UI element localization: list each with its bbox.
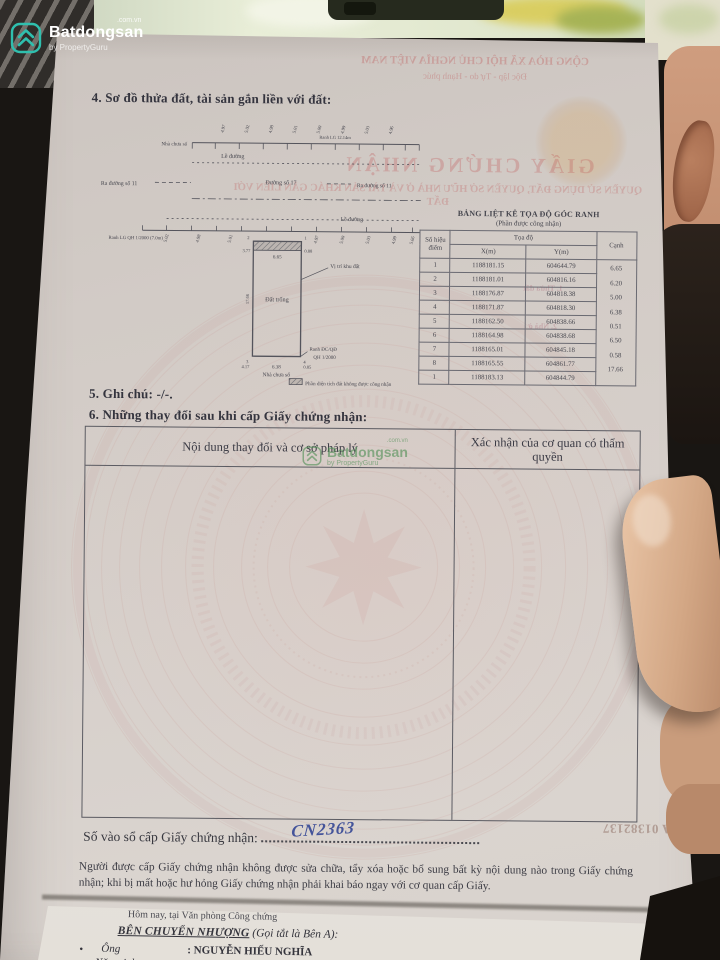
tick-label: 4.97 xyxy=(313,234,320,244)
coordinate-table: BẢNG LIỆT KÊ TỌA ĐỘ GÓC RANH (Phần được … xyxy=(417,209,639,387)
label-empty-land: Đất trống xyxy=(265,296,289,303)
window-green-blob xyxy=(659,4,719,34)
label-qh: QH 1/2000 xyxy=(313,356,336,361)
bleed-national-motto: CỘNG HÒA XÃ HỘI CHỦ NGHĨA VIỆT NAM xyxy=(320,54,630,69)
dim-top-left: 3.77 xyxy=(242,248,251,253)
window-green-foliage xyxy=(556,6,646,34)
dim-top-right: 0.88 xyxy=(304,249,313,254)
brand-watermark-top: .com.vn Batdongsan by PropertyGuru xyxy=(10,22,143,54)
label-house-top: Nhà chưa số xyxy=(161,140,187,147)
contract-party-heading: BÊN CHUYỂN NHƯỢNG (Gọi tắt là Bên A): xyxy=(118,925,339,941)
tick-label: 4.98 xyxy=(195,233,202,243)
col-header-x: X(m) xyxy=(450,244,526,259)
brand-domain: .com.vn xyxy=(387,438,408,444)
label-house-bottom: Nhà chưa số xyxy=(263,371,291,378)
registry-label: Số vào sổ cấp Giấy chứng nhận: xyxy=(83,829,258,846)
changes-col-confirm-header: Xác nhận của cơ quan có thẩm quyền xyxy=(455,430,639,470)
tick-label: 5.66 xyxy=(409,235,416,245)
tick-label: 5.01 xyxy=(227,233,234,243)
registry-number-handwritten: CN2363 xyxy=(291,818,356,842)
label-ranh-top: Ranh LG 12.14m xyxy=(319,135,351,140)
party-row-label: Ông xyxy=(101,943,120,955)
label-street-left: Ra đường số 11 xyxy=(101,180,138,187)
tick-label: 5.01 xyxy=(292,124,299,134)
tick-label: 4.99 xyxy=(340,124,347,134)
tick-label: 5.02 xyxy=(244,124,251,134)
dim-bottom-right: 0.85 xyxy=(303,365,312,370)
certificate-page: CỘNG HÒA XÃ HỘI CHỦ NGHĨA VIỆT NAM Độc l… xyxy=(0,0,720,960)
col-header-point: Số hiệu điểm xyxy=(420,230,450,258)
bullet-icon: • xyxy=(79,943,83,955)
hand-finger xyxy=(666,784,720,854)
changes-body-content-cell xyxy=(82,466,455,820)
photo-scene: CỘNG HÒA XÃ HỘI CHỦ NGHĨA VIỆT NAM Độc l… xyxy=(0,0,720,960)
col-header-coord: Tọa độ xyxy=(450,230,596,245)
label-ranh-qd: Ranh ĐC/QĐ xyxy=(309,348,337,353)
dashboard-object-tip xyxy=(344,2,376,15)
batdongsan-logo-icon xyxy=(302,446,322,466)
party-heading-suffix: (Gọi tắt là Bên A): xyxy=(252,927,338,940)
label-curb-bottom: Lề đường xyxy=(341,216,364,223)
legend-hatch-swatch xyxy=(289,378,302,384)
coordinate-table-subtitle: (Phần được công nhận) xyxy=(419,219,639,229)
dim-top: 6.65 xyxy=(273,255,282,260)
tick-label: 5.00 xyxy=(316,124,323,134)
section5-heading: 5. Ghi chú: -/-. xyxy=(89,386,173,403)
brand-watermark-center: .com.vn Batdongsan by PropertyGuru xyxy=(302,444,408,467)
edge-values: 6.656.20 5.006.38 0.516.50 0.5817.66 xyxy=(595,260,636,386)
tick-label: 4.99 xyxy=(391,235,398,245)
brand-byline: by PropertyGuru xyxy=(327,460,408,467)
cadastral-diagram: 4.97 5.02 4.98 5.01 5.00 4.99 5.03 4.96 … xyxy=(93,116,431,391)
corner-point-tl: 2 xyxy=(247,235,249,240)
certificate-content: CỘNG HÒA XÃ HỘI CHỦ NGHĨA VIỆT NAM Độc l… xyxy=(0,0,720,960)
section4-heading: 4. Sơ đồ thửa đất, tài sản gắn liền với … xyxy=(92,90,332,108)
tick-label: 4.98 xyxy=(268,124,275,134)
changes-table: Nội dung thay đổi và cơ sở pháp lý Xác n… xyxy=(81,426,640,823)
brand-domain: .com.vn xyxy=(117,17,142,24)
dim-bottom: 6.38 xyxy=(272,365,281,370)
corner-point-tr: 1 xyxy=(304,236,306,241)
dim-left: 17.66 xyxy=(245,293,250,304)
brand-name: Batdongsan xyxy=(327,444,408,460)
changes-table-body xyxy=(82,466,639,822)
label-street-center: Đường số 17 xyxy=(265,179,296,186)
legend-text: Phần diện tích đất không được công nhận xyxy=(305,380,392,388)
party-row-value: : NGUYỄN HIẾU NGHĨA xyxy=(187,944,312,958)
registry-number-line: Số vào sổ cấp Giấy chứng nhận: xyxy=(83,827,479,848)
notice-paragraph: Người được cấp Giấy chứng nhận không đượ… xyxy=(79,860,633,896)
brand-byline: by PropertyGuru xyxy=(49,43,143,52)
label-ranh-lg: Ranh LG QH 1/2000 (7.0m) xyxy=(108,236,163,241)
label-curb-top: Lề đường xyxy=(221,153,244,160)
col-header-y: Y(m) xyxy=(526,245,596,260)
section6-heading: 6. Những thay đổi sau khi cấp Giấy chứng… xyxy=(89,407,368,425)
batdongsan-logo-icon xyxy=(10,22,42,54)
tick-label: 4.97 xyxy=(220,123,227,133)
col-header-edge: Cạnh xyxy=(596,232,636,260)
brand-name: Batdongsan xyxy=(49,24,143,42)
bleed-motto-line2: Độc lập - Tự do - Hạnh phúc xyxy=(360,70,590,82)
label-street-right: Ra đường số 11 xyxy=(357,182,392,189)
coordinate-table-title: BẢNG LIỆT KÊ TỌA ĐỘ GÓC RANH xyxy=(419,209,639,220)
dim-bottom-left: 4.17 xyxy=(241,364,250,369)
certificate-serial-upside-down: AA 01382137 xyxy=(531,820,681,837)
tick-label: 5.03 xyxy=(365,235,372,245)
tick-label: 5.00 xyxy=(339,234,346,244)
party-row2-label: Năm sinh xyxy=(95,957,137,960)
tick-label: 5.02 xyxy=(163,233,170,243)
tick-label: 4.96 xyxy=(388,125,395,135)
tick-label: 5.03 xyxy=(364,125,371,135)
label-location: Vị trí khu đất xyxy=(330,263,360,270)
party-heading-text: BÊN CHUYỂN NHƯỢNG xyxy=(118,925,250,939)
thumb-highlight xyxy=(630,492,674,548)
